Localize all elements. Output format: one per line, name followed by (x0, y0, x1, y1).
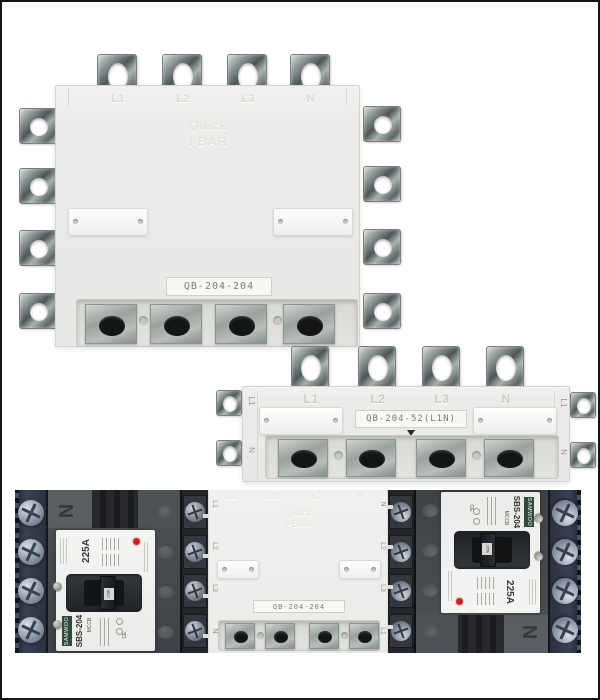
pole-bump (158, 586, 174, 599)
contact-pad (85, 304, 137, 344)
breaker-body: N 225A 225A (48, 490, 180, 653)
lug-hole (30, 178, 48, 196)
terminal-lug (216, 440, 242, 466)
contact-pad (484, 439, 534, 477)
face-phase-label: N (491, 392, 521, 406)
terminal-lug (19, 168, 57, 204)
spec-text-lines (102, 538, 122, 550)
face-phase-label: L3 (427, 392, 457, 406)
terminal (389, 574, 413, 608)
spec-text-lines (528, 579, 536, 605)
lug-hole (432, 355, 452, 381)
contact-pad (225, 623, 255, 649)
phase-label-right: N (379, 496, 387, 512)
terminal-lug (570, 392, 596, 418)
breaker-model-label: SBS-204 (510, 495, 522, 529)
lug-hole (223, 446, 237, 462)
terminal-lug (363, 229, 401, 265)
guide-dot (472, 451, 481, 460)
brand-emboss-line2: I-BAR (158, 134, 258, 150)
terminal-screw (18, 500, 44, 526)
arc-vents (92, 490, 138, 528)
contact-slot (359, 450, 385, 468)
pole-bump (158, 506, 174, 519)
contact-pad (278, 439, 328, 477)
face-phase-label: L1 (103, 93, 133, 105)
spec-text-lines (446, 571, 452, 601)
status-indicator (456, 598, 463, 605)
guide-dot (257, 632, 264, 639)
spec-text-lines (100, 618, 112, 646)
arc-vents (458, 615, 504, 653)
indicator-window (388, 505, 393, 509)
contact-tray (76, 299, 358, 347)
pole-bump (158, 626, 174, 639)
contact-slot (229, 316, 255, 336)
pole-mark: N (54, 498, 80, 524)
contact-pad (416, 439, 466, 477)
face-phase-label: L1 (296, 392, 326, 406)
mold-seam (257, 391, 258, 479)
phase-label-left: L1 (247, 391, 255, 411)
model-label: QB-204-204 (253, 600, 345, 613)
contact-pad (349, 623, 379, 649)
lug-hole (374, 116, 392, 134)
contact-slot (99, 316, 125, 336)
terminal (389, 614, 413, 648)
breaker-faceplate: 225A 225A SAMWOO SBS-204 MCCB (56, 530, 155, 651)
panel-screw (53, 620, 62, 629)
brand-emboss: Quick I-BAR (259, 508, 339, 531)
spec-text-lines (474, 593, 494, 605)
toggle-handle[interactable]: 225A (480, 533, 496, 567)
phase-label-left: L1 (211, 496, 219, 512)
certification-mark (473, 508, 480, 515)
terminal-lug (570, 442, 596, 468)
phase-label-right: L1 (559, 393, 567, 413)
contact-pad (265, 623, 295, 649)
pole-mark: N (516, 619, 542, 645)
breaker-faceplate: 225A 225A SAMWOO SBS-204 MCCB (441, 492, 540, 613)
pole-bump (158, 546, 174, 559)
terminal (389, 495, 413, 529)
model-label: QB-204-204 (166, 277, 272, 296)
terminal (389, 535, 413, 569)
retainer-clip (217, 560, 259, 579)
terminal-lug (216, 390, 242, 416)
terminal-screw (185, 621, 205, 641)
spec-text-lines (144, 542, 150, 572)
indicator-window (388, 625, 393, 629)
terminal-screw (185, 502, 205, 522)
contact-slot (497, 450, 523, 468)
terminal (183, 614, 207, 648)
contact-pad (215, 304, 267, 344)
lug-hole (301, 355, 321, 381)
contact-slot (291, 450, 317, 468)
terminal-screw (185, 542, 205, 562)
phase-label-right: L2 (379, 538, 387, 554)
terminal-screw (553, 539, 579, 565)
face-phase-label: N (296, 93, 326, 105)
retainer-clip (68, 208, 148, 236)
status-indicator (133, 538, 140, 545)
lug-hole (223, 396, 237, 412)
contact-pad (309, 623, 339, 649)
phase-label-left: L3 (211, 580, 219, 596)
lug-hole (30, 240, 48, 258)
face-phase-label: L3 (305, 492, 329, 501)
spec-text-lines (102, 554, 122, 566)
certification-mark (473, 518, 480, 525)
terminal-lug (19, 108, 57, 144)
breaker-left: N 225A 225A (15, 490, 208, 653)
phase-label-right: L3 (379, 580, 387, 596)
guide-dot (139, 316, 148, 325)
terminal-screw (18, 539, 44, 565)
brand-emboss-line2: I-BAR (259, 519, 339, 530)
guide-dot (334, 451, 343, 460)
phase-label-right: L1 (379, 623, 387, 639)
brand-emboss-line1: Quick (259, 508, 339, 519)
lug-hole (496, 355, 516, 381)
breaker-type-label: MCCB (503, 509, 509, 527)
busbar-center: L1 L2 L3 N N L2 L3 L1 L1 L2 L3 N Quick I… (208, 490, 388, 653)
mold-seam (346, 88, 347, 106)
face-phase-label: L1 (219, 492, 243, 501)
indicator-window (388, 545, 393, 549)
busbar-strip-body: L1 L2 L3 N L1 N L1 N QB-204-52(L1N) (242, 386, 570, 482)
retainer-clip (339, 560, 381, 579)
terminal-screw (553, 578, 579, 604)
terminal-screw (391, 621, 411, 641)
breaker-toggle[interactable]: 225A (66, 574, 142, 612)
brand-emboss-line1: Quick (158, 118, 258, 134)
lug-hole (577, 398, 591, 414)
terminal-screw (18, 617, 44, 643)
pole-bump (422, 544, 438, 557)
lug-hole (30, 303, 48, 321)
breaker-body: N 225A 225A (416, 490, 548, 653)
breaker-type-label: MCCB (87, 616, 93, 634)
pole-bump (422, 504, 438, 517)
contact-slot (429, 450, 455, 468)
handle-tag-label: 225A (107, 590, 110, 598)
breaker-model-label: SBS-204 (74, 614, 86, 648)
contact-slot (274, 631, 288, 643)
phase-label-right: N (559, 442, 567, 462)
retainer-clip (259, 407, 343, 435)
certification-mark (116, 618, 123, 625)
spec-text-lines (60, 538, 68, 564)
contact-tray (218, 620, 380, 651)
lug-hole (368, 355, 388, 381)
face-phase-label: N (349, 492, 373, 501)
terminal-screw (391, 542, 411, 562)
face-phase-label: L2 (168, 93, 198, 105)
spec-text-lines (474, 577, 494, 589)
contact-slot (164, 316, 190, 336)
terminal-lug (363, 166, 401, 202)
terminal-screw (553, 617, 579, 643)
assembly-photo: N 225A 225A (15, 490, 581, 653)
phase-label-left: N (247, 440, 255, 460)
handle-tag: 225A (482, 543, 492, 555)
brand-label: SAMWOO (524, 497, 534, 527)
rating-label: 225A (80, 536, 94, 566)
line-terminal-block (548, 490, 581, 653)
lug-hole (374, 303, 392, 321)
guide-dot (273, 316, 282, 325)
terminal-lug (19, 293, 57, 329)
terminal-lug (363, 106, 401, 142)
product-image: L1 L2 L3 N N L2 L3 L1 L1 L2 L3 N Quick I… (0, 0, 600, 700)
busbar-adapter-body: L1 L2 L3 N Quick I-BAR QB-204-204 (55, 85, 360, 347)
toggle-handle[interactable]: 225A (100, 576, 116, 610)
panel-screw (53, 582, 62, 591)
face-phase-label: L2 (261, 492, 285, 501)
terminal-screw (391, 502, 411, 522)
mold-seam (68, 88, 69, 106)
lug-hole (374, 176, 392, 194)
panel-screw (534, 552, 543, 561)
guide-dot (341, 632, 348, 639)
contact-pad (283, 304, 335, 344)
breaker-right: N 225A 225A (388, 490, 581, 653)
terminal-screw (185, 581, 205, 601)
spec-text-lines (484, 497, 496, 525)
terminal (183, 495, 207, 529)
face-phase-label: L2 (363, 392, 393, 406)
contact-slot (297, 316, 323, 336)
ce-mark: CE (468, 503, 474, 513)
handle-tag-label: 225A (485, 545, 488, 553)
brand-emboss: Quick I-BAR (158, 118, 258, 151)
terminal-screw (553, 500, 579, 526)
handle-tag: 225A (104, 588, 114, 600)
lug-hole (577, 448, 591, 464)
retainer-clip (473, 407, 557, 435)
contact-slot (358, 631, 372, 643)
panel-screw (534, 514, 543, 523)
ce-mark: CE (122, 630, 128, 640)
lug-hole (374, 239, 392, 257)
line-terminal-block (15, 490, 48, 653)
load-terminal-block (180, 490, 208, 653)
terminal-lug (19, 230, 57, 266)
terminal-lug (363, 293, 401, 329)
terminal (183, 535, 207, 569)
pole-bump (422, 584, 438, 597)
brand-label: SAMWOO (62, 616, 72, 646)
pole-bump (422, 624, 438, 637)
rating-label: 225A (502, 577, 516, 607)
terminal-screw (18, 578, 44, 604)
phase-label-left: L2 (211, 538, 219, 554)
contact-slot (234, 631, 248, 643)
contact-tray (265, 435, 559, 479)
contact-slot (318, 631, 332, 643)
contact-pad (150, 304, 202, 344)
load-terminal-block (388, 490, 416, 653)
indicator-window (388, 585, 393, 589)
terminal (183, 574, 207, 608)
contact-pad (346, 439, 396, 477)
retainer-clip (273, 208, 353, 236)
lug-hole (30, 118, 48, 136)
breaker-toggle[interactable]: 225A (454, 531, 530, 569)
terminal-screw (391, 581, 411, 601)
model-label: QB-204-52(L1N) (355, 410, 467, 428)
face-phase-label: L3 (233, 93, 263, 105)
